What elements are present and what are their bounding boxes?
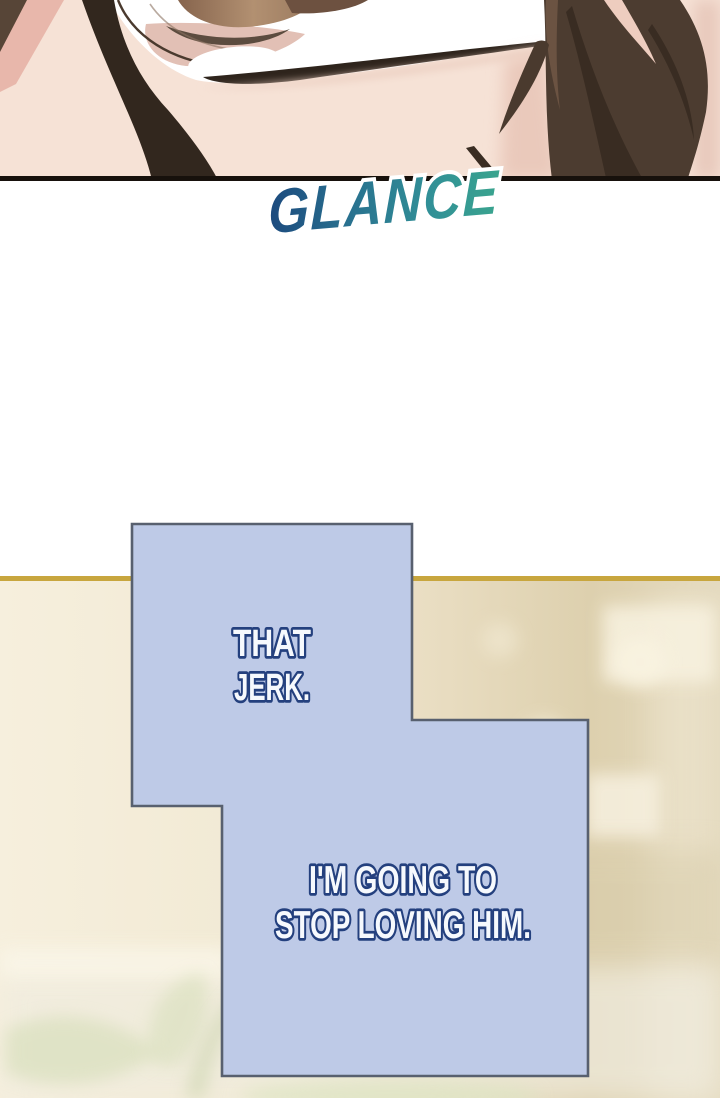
svg-text:JERK.: JERK. <box>234 667 310 709</box>
svg-text:THAT: THAT <box>233 623 311 665</box>
svg-text:I'M GOING TO: I'M GOING TO <box>309 859 497 902</box>
svg-text:STOP LOVING HIM.: STOP LOVING HIM. <box>275 904 531 947</box>
